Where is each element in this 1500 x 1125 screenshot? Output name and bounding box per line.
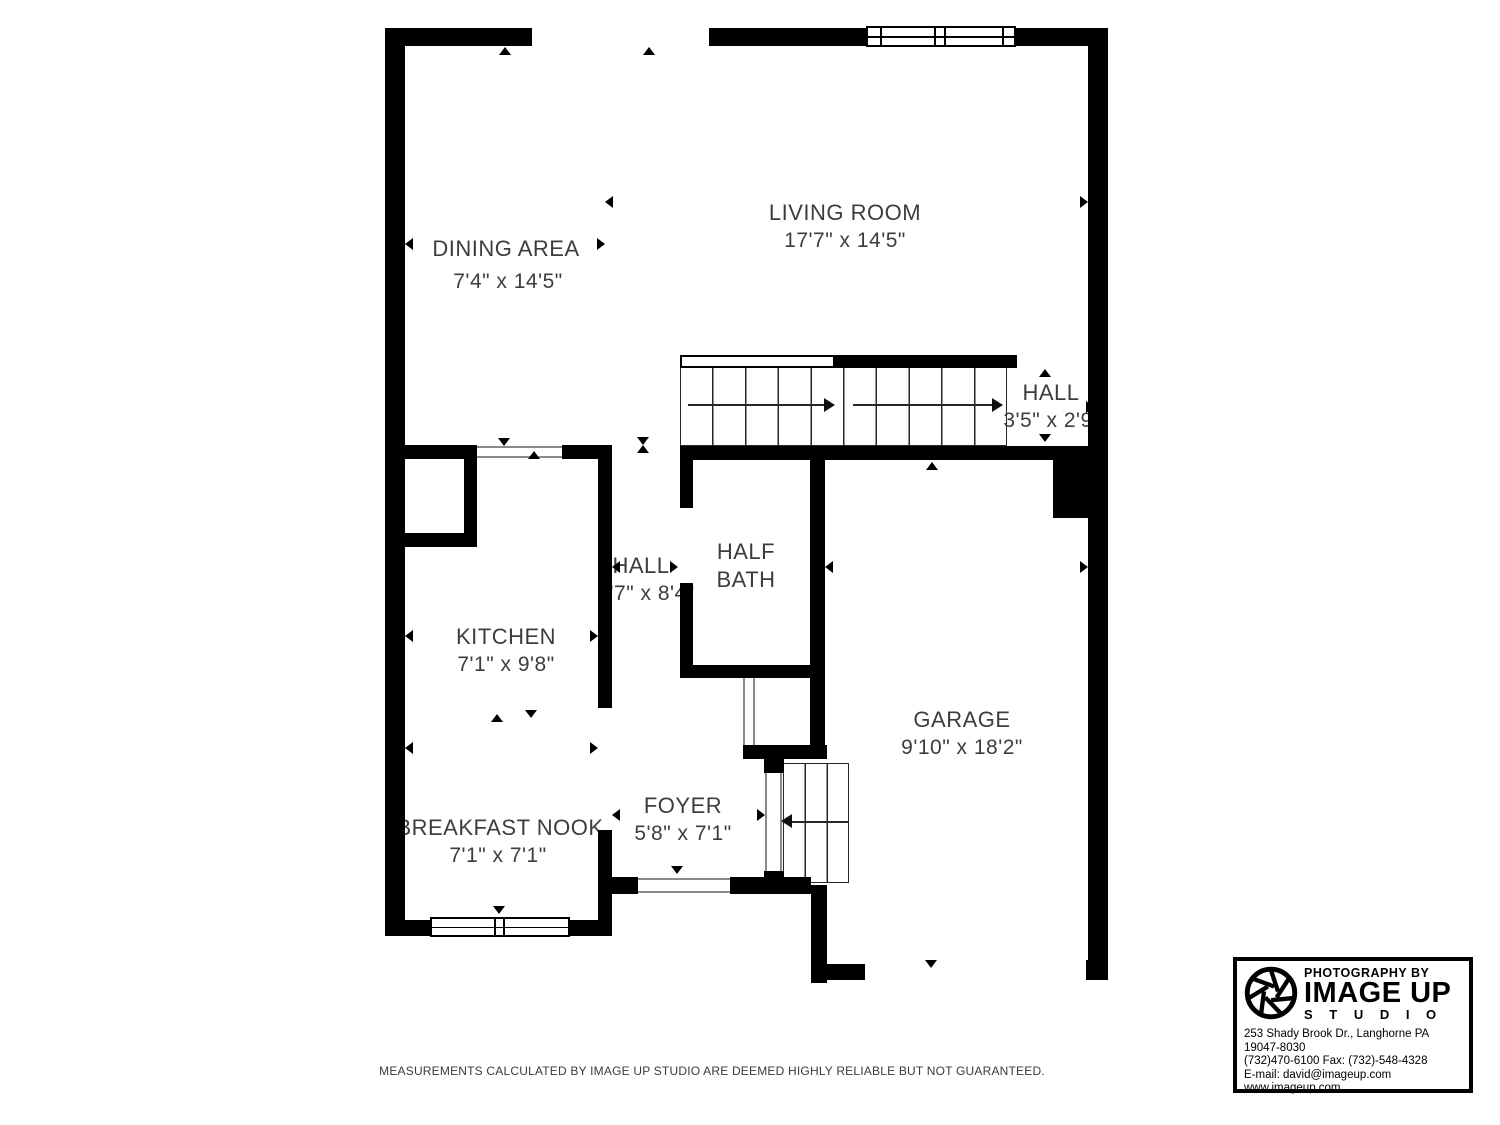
measure-marker bbox=[525, 710, 537, 718]
wall-foyer-nub bbox=[764, 871, 784, 885]
garage-label: GARAGE bbox=[913, 707, 1010, 733]
measure-marker bbox=[1039, 434, 1051, 442]
wall-halfbath-left-a bbox=[680, 446, 693, 508]
measure-marker bbox=[1080, 561, 1088, 573]
logo-brand: IMAGE UP bbox=[1304, 980, 1451, 1006]
wall-closet-nub bbox=[764, 759, 784, 773]
measure-marker bbox=[499, 47, 511, 55]
measure-marker bbox=[926, 462, 938, 470]
garage-stair-direction-arrow bbox=[781, 814, 792, 828]
logo-email: E-mail: david@imageup.com bbox=[1244, 1069, 1462, 1083]
measure-marker bbox=[612, 809, 620, 821]
measure-marker bbox=[670, 561, 678, 573]
wall-garage-left-lower bbox=[811, 885, 827, 983]
logo-web: www.imageup.com bbox=[1244, 1082, 1462, 1096]
stair-railing bbox=[680, 355, 837, 368]
half-bath-label: BATH bbox=[716, 567, 775, 593]
hall-label: HALL bbox=[612, 553, 669, 579]
measure-marker bbox=[605, 196, 613, 208]
breakfast-nook-label: BREAKFAST NOOK bbox=[396, 815, 603, 841]
foyer-passage-line bbox=[765, 773, 767, 871]
logo-phone: (732)470-6100 Fax: (732)-548-4328 bbox=[1244, 1055, 1462, 1069]
measure-marker bbox=[825, 561, 833, 573]
wall-pantry-bottom bbox=[385, 533, 477, 547]
measure-marker bbox=[491, 714, 503, 722]
aperture-icon bbox=[1244, 966, 1298, 1025]
living-room-label: LIVING ROOM bbox=[769, 200, 921, 226]
breakfast-nook-dims: 7'1" x 7'1" bbox=[449, 844, 546, 868]
wall-stairs-top bbox=[833, 355, 1017, 368]
garage-dims: 9'10" x 18'2" bbox=[901, 736, 1023, 760]
disclaimer-text: MEASUREMENTS CALCULATED BY IMAGE UP STUD… bbox=[379, 1064, 1045, 1078]
measure-marker bbox=[637, 437, 649, 445]
garage-stair-direction-line bbox=[792, 821, 849, 823]
kitchen-door-line bbox=[477, 456, 562, 458]
logo-sub: S T U D I O bbox=[1304, 1007, 1451, 1022]
closet-door-line bbox=[743, 678, 745, 745]
measure-marker bbox=[498, 438, 510, 446]
closet-door-line bbox=[753, 678, 755, 745]
measure-marker bbox=[637, 445, 649, 453]
dining-area-label: DINING AREA bbox=[432, 236, 579, 262]
wall-block-hall-corner bbox=[1053, 446, 1108, 518]
breakfast-nook-window bbox=[430, 917, 570, 937]
floor-plan: DINING AREA 7'4" x 14'5" LIVING ROOM 17'… bbox=[0, 0, 1500, 1125]
measure-marker bbox=[528, 451, 540, 459]
measure-marker bbox=[405, 630, 413, 642]
measure-marker bbox=[1086, 401, 1094, 413]
wall-exterior-top-b bbox=[709, 28, 868, 46]
photographer-logo: PHOTOGRAPHY BY IMAGE UP S T U D I O 253 … bbox=[1233, 957, 1473, 1093]
wall-pantry-right bbox=[464, 445, 477, 533]
wall-under-stairs bbox=[680, 446, 1055, 460]
measure-marker bbox=[597, 238, 605, 250]
wall-kitchen-right-upper bbox=[598, 445, 612, 708]
foyer-label: FOYER bbox=[644, 793, 722, 819]
wall-halfbath-bottom bbox=[680, 665, 823, 678]
measure-marker bbox=[1080, 196, 1088, 208]
wall-closet-bottom bbox=[743, 745, 827, 759]
measure-marker bbox=[493, 906, 505, 914]
living-room-dims: 17'7" x 14'5" bbox=[784, 229, 906, 253]
measure-marker bbox=[643, 47, 655, 55]
wall-nook-bottom-a bbox=[385, 920, 432, 936]
stair-direction-arrow bbox=[824, 398, 835, 412]
wall-exterior-top-a bbox=[385, 28, 532, 46]
measure-marker bbox=[612, 561, 620, 573]
front-door-line bbox=[638, 878, 730, 880]
kitchen-door-line bbox=[477, 446, 562, 448]
kitchen-dims: 7'1" x 9'8" bbox=[457, 653, 554, 677]
measure-marker bbox=[1039, 369, 1051, 377]
wall-exterior-left bbox=[385, 28, 405, 935]
stair-direction-arrow bbox=[992, 398, 1003, 412]
foyer-dims: 5'8" x 7'1" bbox=[634, 822, 731, 846]
main-staircase bbox=[680, 367, 1007, 446]
wall-garage-corner bbox=[1086, 960, 1108, 980]
wall-garage-left-upper bbox=[810, 446, 825, 750]
stair-direction-line bbox=[853, 404, 994, 406]
dining-area-dims: 7'4" x 14'5" bbox=[453, 270, 563, 294]
measure-marker bbox=[405, 742, 413, 754]
measure-marker bbox=[590, 742, 598, 754]
measure-marker bbox=[405, 238, 413, 250]
kitchen-label: KITCHEN bbox=[456, 624, 556, 650]
wall-nook-right-lower bbox=[598, 830, 612, 936]
living-room-window bbox=[866, 26, 1016, 47]
front-door-line bbox=[638, 891, 730, 893]
measure-marker bbox=[757, 809, 765, 821]
measure-marker bbox=[671, 866, 683, 874]
measure-marker bbox=[590, 630, 598, 642]
wall-halfbath-left-b bbox=[680, 583, 693, 678]
logo-address: 253 Shady Brook Dr., Langhorne PA 19047-… bbox=[1244, 1028, 1462, 1055]
garage-staircase bbox=[783, 763, 849, 883]
measure-marker bbox=[925, 960, 937, 968]
half-bath-label: HALF bbox=[717, 539, 775, 565]
hall-upper-label: HALL bbox=[1022, 380, 1079, 406]
stair-direction-line bbox=[688, 404, 826, 406]
